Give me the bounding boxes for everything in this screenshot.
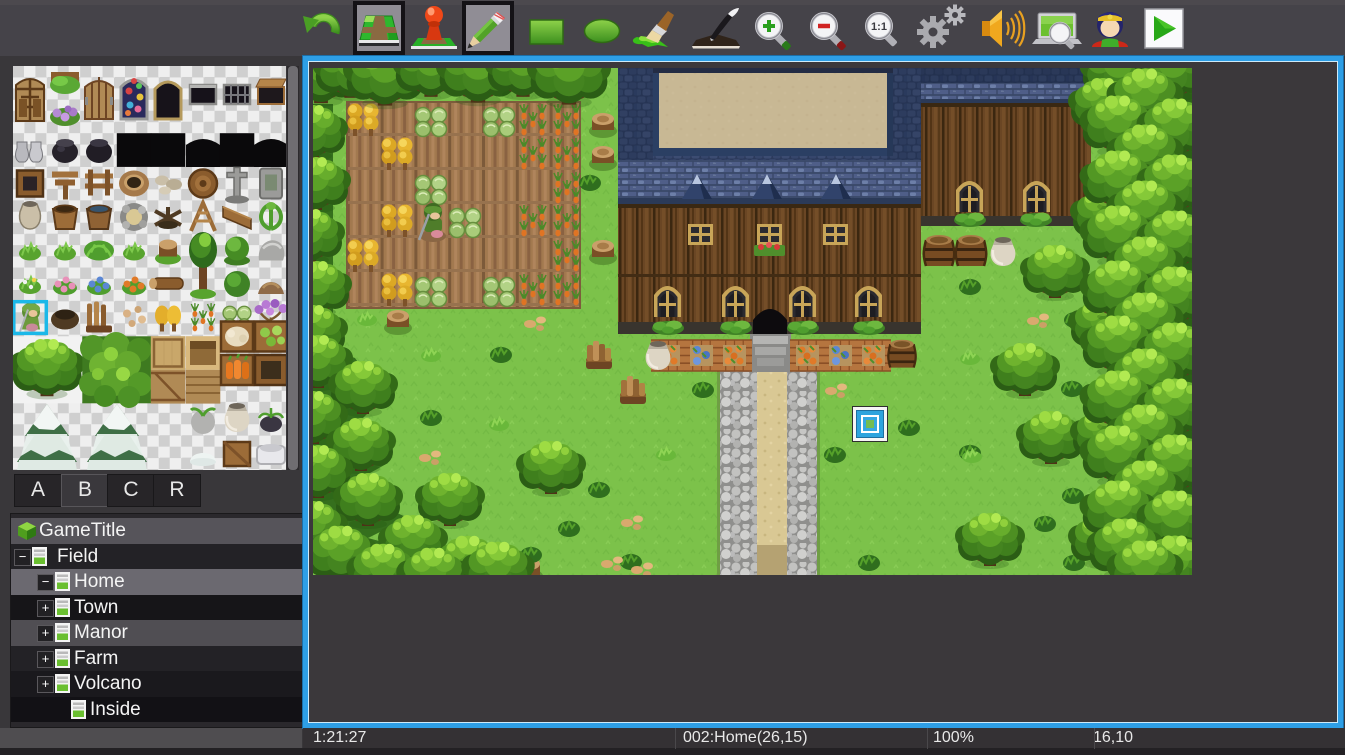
svg-text:1:1: 1:1 (871, 21, 887, 33)
